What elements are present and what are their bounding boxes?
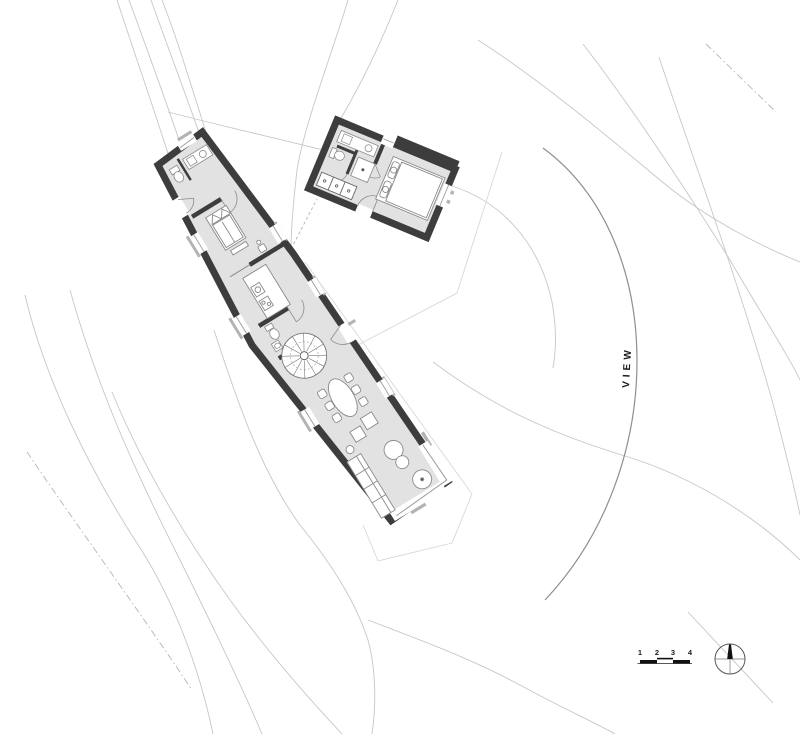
guest-house-plan [307,112,466,246]
contour-lines [25,0,800,734]
north-needle [727,645,733,660]
site-plan-page: VIEW [0,0,800,734]
north-arrow-icon [715,644,745,674]
scale-label-3: 3 [671,648,675,657]
view-annotation: VIEW [543,148,637,600]
scale-label-4: 4 [688,648,693,657]
site-plan-drawing: VIEW [0,0,800,734]
building-connector-line [291,199,317,249]
scale-bar: 1 2 3 4 [638,648,693,664]
view-label: VIEW [621,346,634,388]
scale-label-1: 1 [638,648,642,657]
scale-label-2: 2 [655,648,659,657]
